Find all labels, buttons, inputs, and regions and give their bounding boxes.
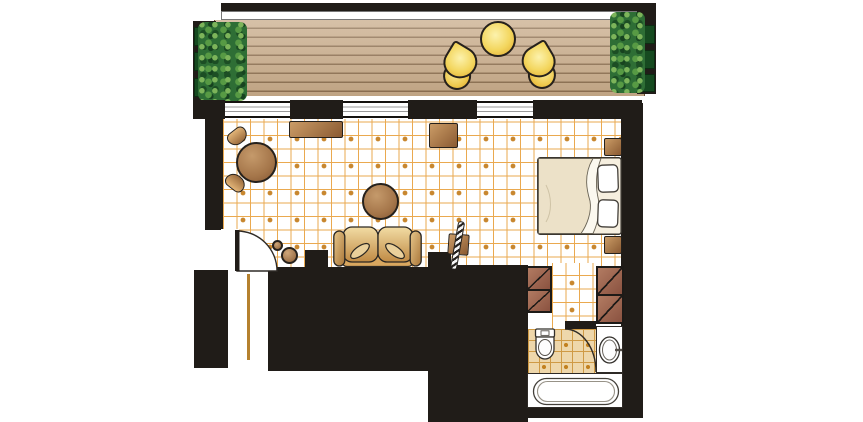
entry-door-leaf — [235, 230, 240, 271]
wardrobe-left — [526, 266, 552, 313]
toilet-seat — [539, 340, 552, 356]
window — [225, 101, 290, 118]
sink-counter — [596, 326, 623, 373]
sofa-armrest — [410, 231, 421, 266]
toilet-button — [541, 331, 549, 336]
threshold-strip — [247, 274, 250, 360]
wall-pillar — [305, 250, 328, 268]
duvet — [539, 159, 594, 234]
wall-segment — [290, 100, 343, 119]
balcony-railing — [221, 11, 638, 20]
window — [477, 101, 533, 118]
sofa-armrest — [334, 231, 345, 266]
nightstand-lower — [604, 236, 622, 254]
wardrobe-door — [597, 267, 623, 295]
window — [343, 101, 408, 118]
wardrobe-door — [527, 290, 551, 313]
nightstand-upper — [604, 138, 622, 156]
hedge-right — [610, 12, 645, 93]
entry-door-swing — [237, 231, 277, 271]
bathtub-basin — [528, 374, 624, 409]
bed-pillow — [598, 200, 619, 228]
console-table — [289, 121, 343, 138]
entry-wall-left — [194, 270, 228, 368]
side-stool-small — [272, 240, 283, 251]
floor-plan — [0, 0, 863, 422]
hedge-left — [198, 22, 247, 101]
sink-tap — [615, 349, 622, 351]
double-bed — [537, 157, 622, 235]
wardrobe-right — [596, 266, 624, 324]
left-wall — [205, 119, 223, 230]
sofa — [333, 226, 422, 268]
bathroom-door-leaf — [565, 321, 596, 329]
bathroom-door-swing — [565, 329, 596, 372]
tv-stand — [429, 123, 458, 148]
dining-table — [236, 142, 277, 183]
bottom-wall — [268, 267, 428, 371]
balcony-table — [480, 21, 516, 57]
bed-pillow — [598, 165, 619, 193]
coffee-table — [362, 183, 399, 220]
side-stool-large — [281, 247, 298, 264]
wood-deck — [214, 20, 645, 96]
right-wall — [621, 103, 643, 413]
bathtub — [527, 373, 623, 408]
wardrobe-door — [527, 267, 551, 290]
toilet — [531, 328, 559, 362]
wall-segment — [408, 100, 477, 119]
sink-basin — [597, 327, 624, 374]
wall-segment — [193, 100, 225, 119]
bathroom-wall-block — [428, 265, 528, 422]
